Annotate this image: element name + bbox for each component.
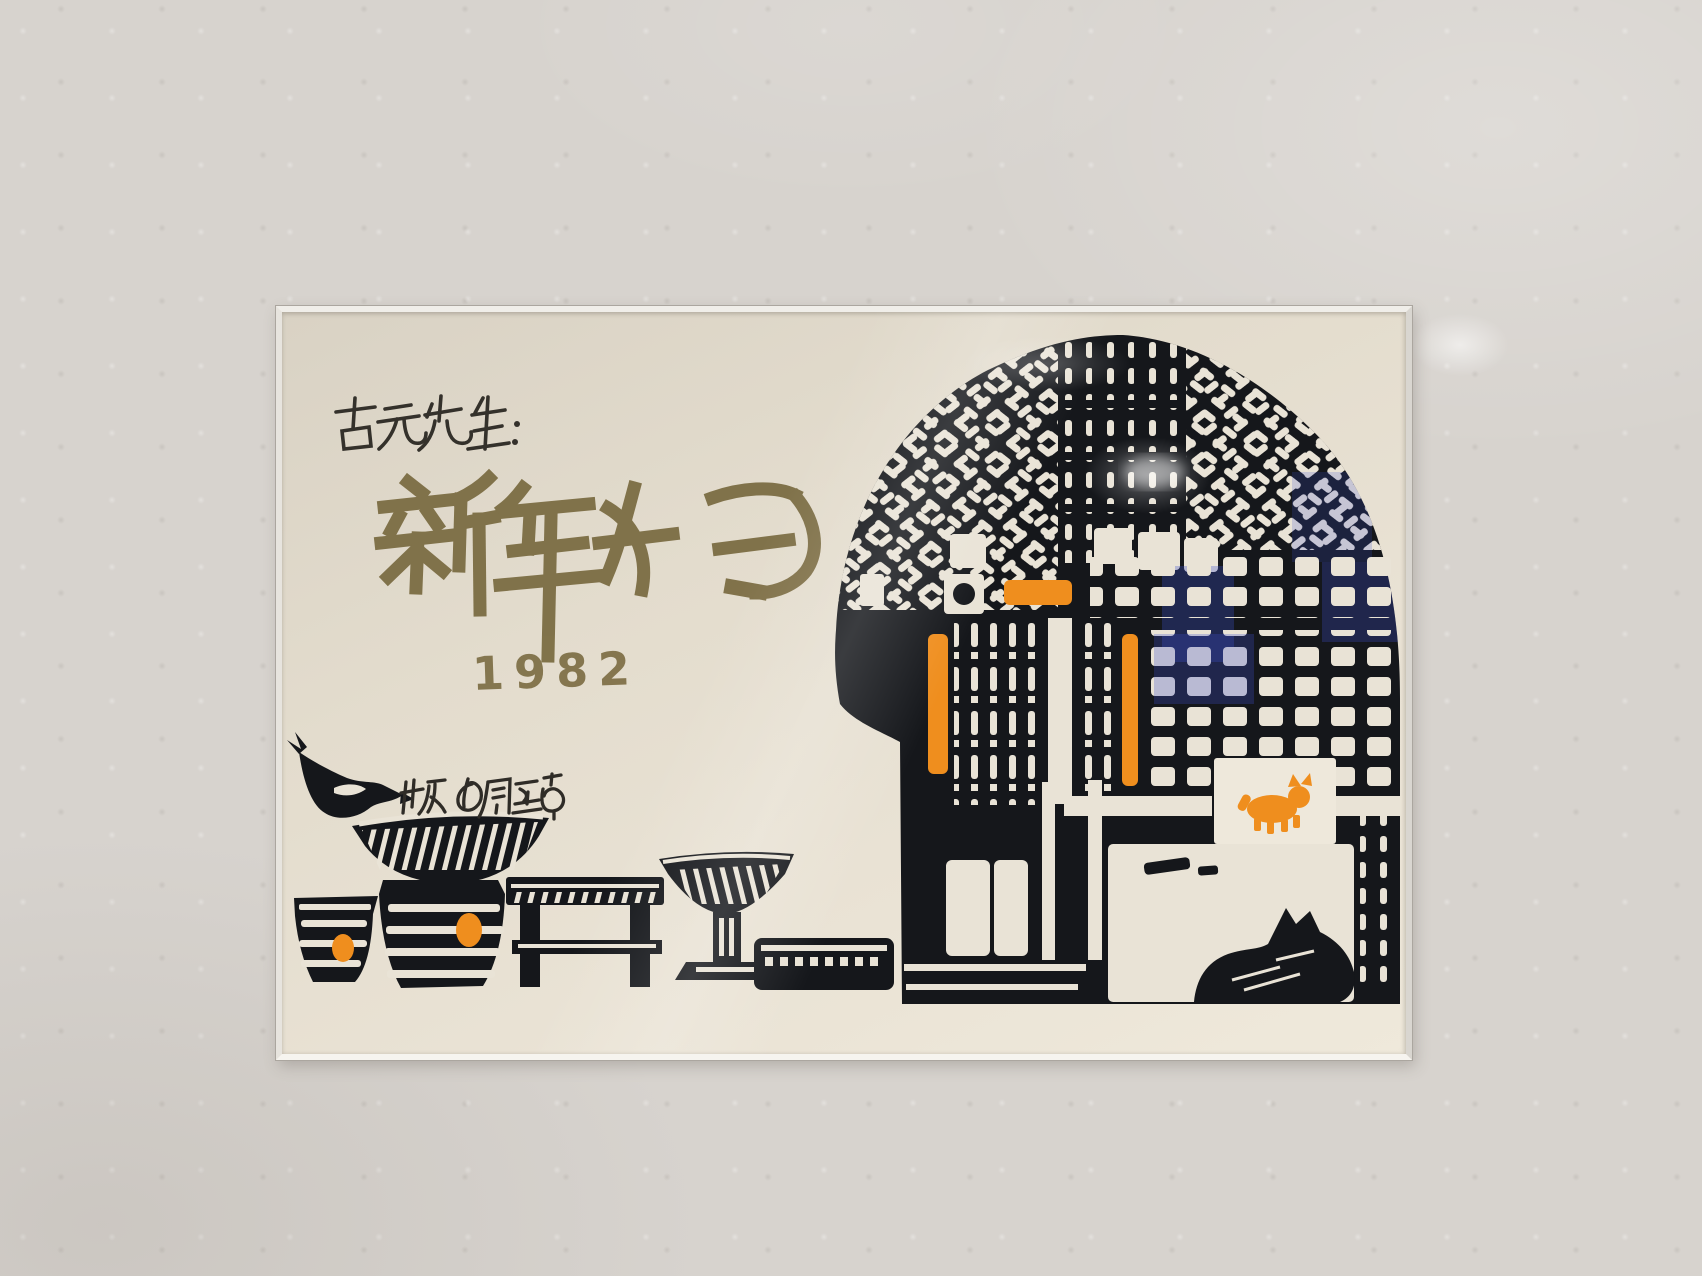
year-text: 1982: [471, 641, 641, 701]
photo-of-framed-print: 1982 古元先生: 新年好 版の周至南: [0, 0, 1702, 1276]
bird-on-basket: [287, 732, 414, 818]
door-lattice-right: [1074, 615, 1120, 805]
feeding-trough: [754, 938, 894, 990]
woven-basket: [352, 814, 549, 884]
striped-cup: [294, 896, 378, 982]
lantern-knocker: [953, 583, 975, 605]
glass-highlight: [1124, 456, 1184, 488]
threshold-step: [906, 984, 1078, 990]
inscription-calligraphy: [336, 396, 520, 450]
glass-blue-sheen: [1292, 472, 1372, 562]
signature-calligraphy: [401, 774, 564, 819]
door-bottom-panel: [946, 860, 990, 956]
threshold-step: [904, 964, 1086, 971]
still-life-print: [287, 732, 894, 990]
dome-white-square: [950, 534, 986, 568]
walkway-band: [1064, 796, 1212, 816]
orange-lintel-bar: [1004, 580, 1072, 605]
window-grid-upper: [1090, 556, 1400, 618]
orange-door-bar-left: [928, 634, 948, 774]
pavilion-gate-print: [835, 335, 1402, 1004]
orange-door-bar-right: [1122, 634, 1138, 786]
artwork-print: [282, 312, 1406, 1054]
door-jamb: [1048, 618, 1072, 804]
orange-dot: [332, 934, 354, 962]
orange-dog-signboard: [1214, 758, 1336, 844]
wooden-bench: [506, 877, 664, 987]
striped-jar: [379, 880, 505, 988]
resting-dog-panel: [1108, 844, 1355, 1002]
door-lattice-left: [954, 615, 1046, 805]
greeting-calligraphy: [381, 478, 814, 656]
door-bottom-panel: [994, 860, 1028, 956]
glass-blue-sheen: [1154, 634, 1254, 704]
picture-frame: 1982: [276, 306, 1412, 1060]
orange-dot: [456, 913, 482, 947]
